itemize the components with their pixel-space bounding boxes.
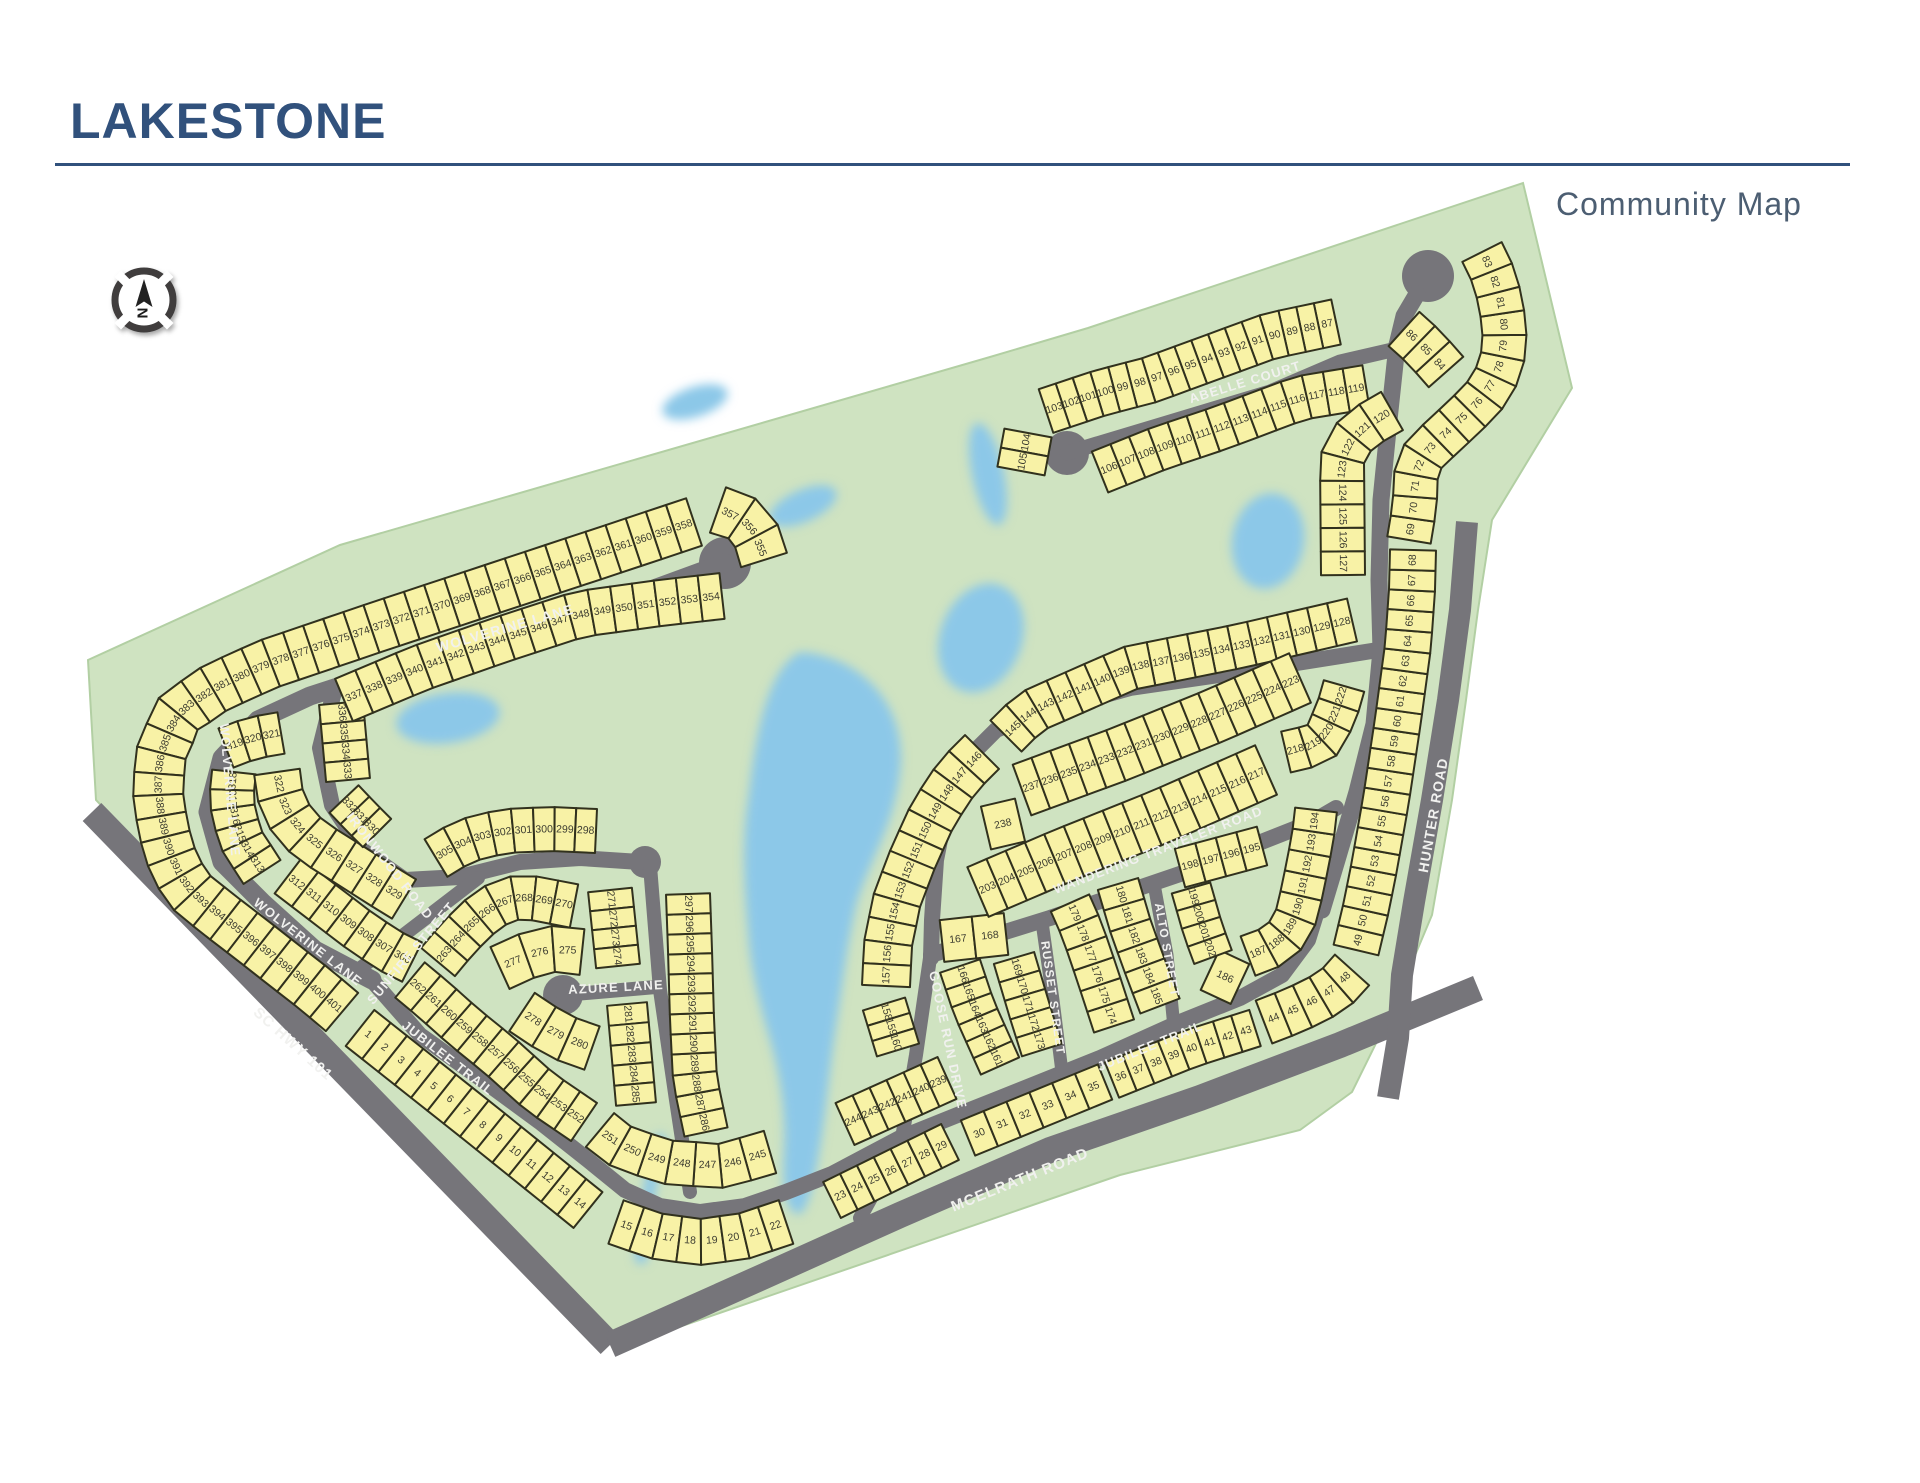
lot-number-282: 282 [623, 1025, 637, 1044]
lot-number-59: 59 [1388, 734, 1402, 747]
lot-number-272: 272 [606, 909, 620, 928]
lot-number-123: 123 [1335, 460, 1349, 479]
lot-number-275: 275 [559, 944, 577, 956]
lot-number-124: 124 [1336, 484, 1348, 502]
lot-number-387: 387 [153, 775, 165, 793]
lot-number-353: 353 [680, 593, 699, 607]
page-subtitle: Community Map [1556, 186, 1802, 223]
svg-text:N: N [134, 308, 151, 319]
lot-number-301: 301 [514, 824, 532, 837]
lot-number-125: 125 [1336, 507, 1348, 525]
lot-number-296: 296 [683, 915, 696, 933]
lot-number-352: 352 [658, 595, 677, 609]
lot-number-273: 273 [608, 928, 622, 947]
lot-number-299: 299 [556, 823, 574, 835]
lot-number-290: 290 [687, 1034, 700, 1052]
lot-number-298: 298 [577, 824, 595, 837]
lot-number-168: 168 [981, 929, 1000, 943]
lot-number-63: 63 [1399, 654, 1412, 667]
lot-number-269: 269 [535, 893, 554, 907]
lot-number-66: 66 [1405, 594, 1418, 607]
lot-number-295: 295 [683, 935, 696, 953]
page-title: LAKESTONE [70, 92, 386, 150]
lot-number-65: 65 [1403, 614, 1416, 627]
lot-number-71: 71 [1409, 479, 1422, 492]
lot-number-284: 284 [627, 1065, 641, 1084]
lot-number-336: 336 [335, 703, 349, 722]
lot-number-54: 54 [1372, 834, 1386, 848]
lot-number-17: 17 [662, 1231, 676, 1245]
lot-number-288: 288 [689, 1074, 703, 1093]
lot-number-20: 20 [727, 1230, 741, 1244]
lot-number-69: 69 [1404, 522, 1418, 536]
page: 1234567891011121314151617181920212223242… [0, 0, 1920, 1483]
lot-number-60: 60 [1391, 714, 1405, 727]
lot-number-194: 194 [1308, 811, 1322, 830]
lot-number-157: 157 [880, 966, 893, 984]
lot-number-156: 156 [881, 944, 895, 963]
lot-number-19: 19 [706, 1234, 719, 1247]
lot-number-79: 79 [1497, 339, 1510, 352]
lot-number-61: 61 [1394, 694, 1407, 707]
lot-number-67: 67 [1406, 574, 1418, 586]
lot-number-52: 52 [1364, 874, 1378, 888]
lot-number-281: 281 [621, 1005, 635, 1024]
lot-number-293: 293 [685, 975, 698, 993]
lot-number-62: 62 [1397, 674, 1410, 687]
lot-number-351: 351 [636, 598, 655, 612]
lot-number-248: 248 [672, 1156, 691, 1170]
lot-number-56: 56 [1379, 794, 1393, 808]
lot-number-354: 354 [702, 590, 721, 604]
lot-number-68: 68 [1407, 554, 1419, 566]
title-underline [55, 163, 1850, 166]
lot-number-58: 58 [1385, 754, 1399, 767]
lot-number-300: 300 [535, 823, 553, 835]
lot-number-127: 127 [1337, 554, 1349, 572]
lot-number-53: 53 [1368, 854, 1382, 868]
lot-number-18: 18 [684, 1234, 697, 1247]
lot-number-289: 289 [688, 1054, 701, 1073]
lot-number-333: 333 [340, 761, 354, 780]
lot-number-55: 55 [1375, 814, 1389, 828]
lot-number-350: 350 [615, 601, 634, 615]
lot-number-291: 291 [686, 1015, 699, 1033]
lot-number-126: 126 [1337, 531, 1349, 549]
lot-number-335: 335 [337, 723, 351, 742]
lot-number-247: 247 [699, 1159, 717, 1171]
lot-number-292: 292 [685, 995, 698, 1013]
lot-number-388: 388 [153, 796, 167, 815]
lot-number-274: 274 [610, 947, 624, 966]
lot-number-271: 271 [604, 890, 618, 909]
pond [658, 377, 732, 427]
lot-number-64: 64 [1402, 634, 1415, 647]
lot-number-297: 297 [682, 895, 695, 913]
lot-number-283: 283 [625, 1045, 639, 1064]
lot-number-334: 334 [339, 742, 353, 761]
lot-number-285: 285 [628, 1085, 642, 1104]
lot-number-80: 80 [1497, 318, 1510, 331]
lot-number-167: 167 [949, 932, 968, 946]
lot-number-268: 268 [515, 892, 533, 905]
compass-icon: N [115, 271, 173, 329]
lot-number-57: 57 [1382, 774, 1396, 788]
lot-number-70: 70 [1407, 501, 1420, 514]
lot-number-294: 294 [684, 955, 697, 973]
